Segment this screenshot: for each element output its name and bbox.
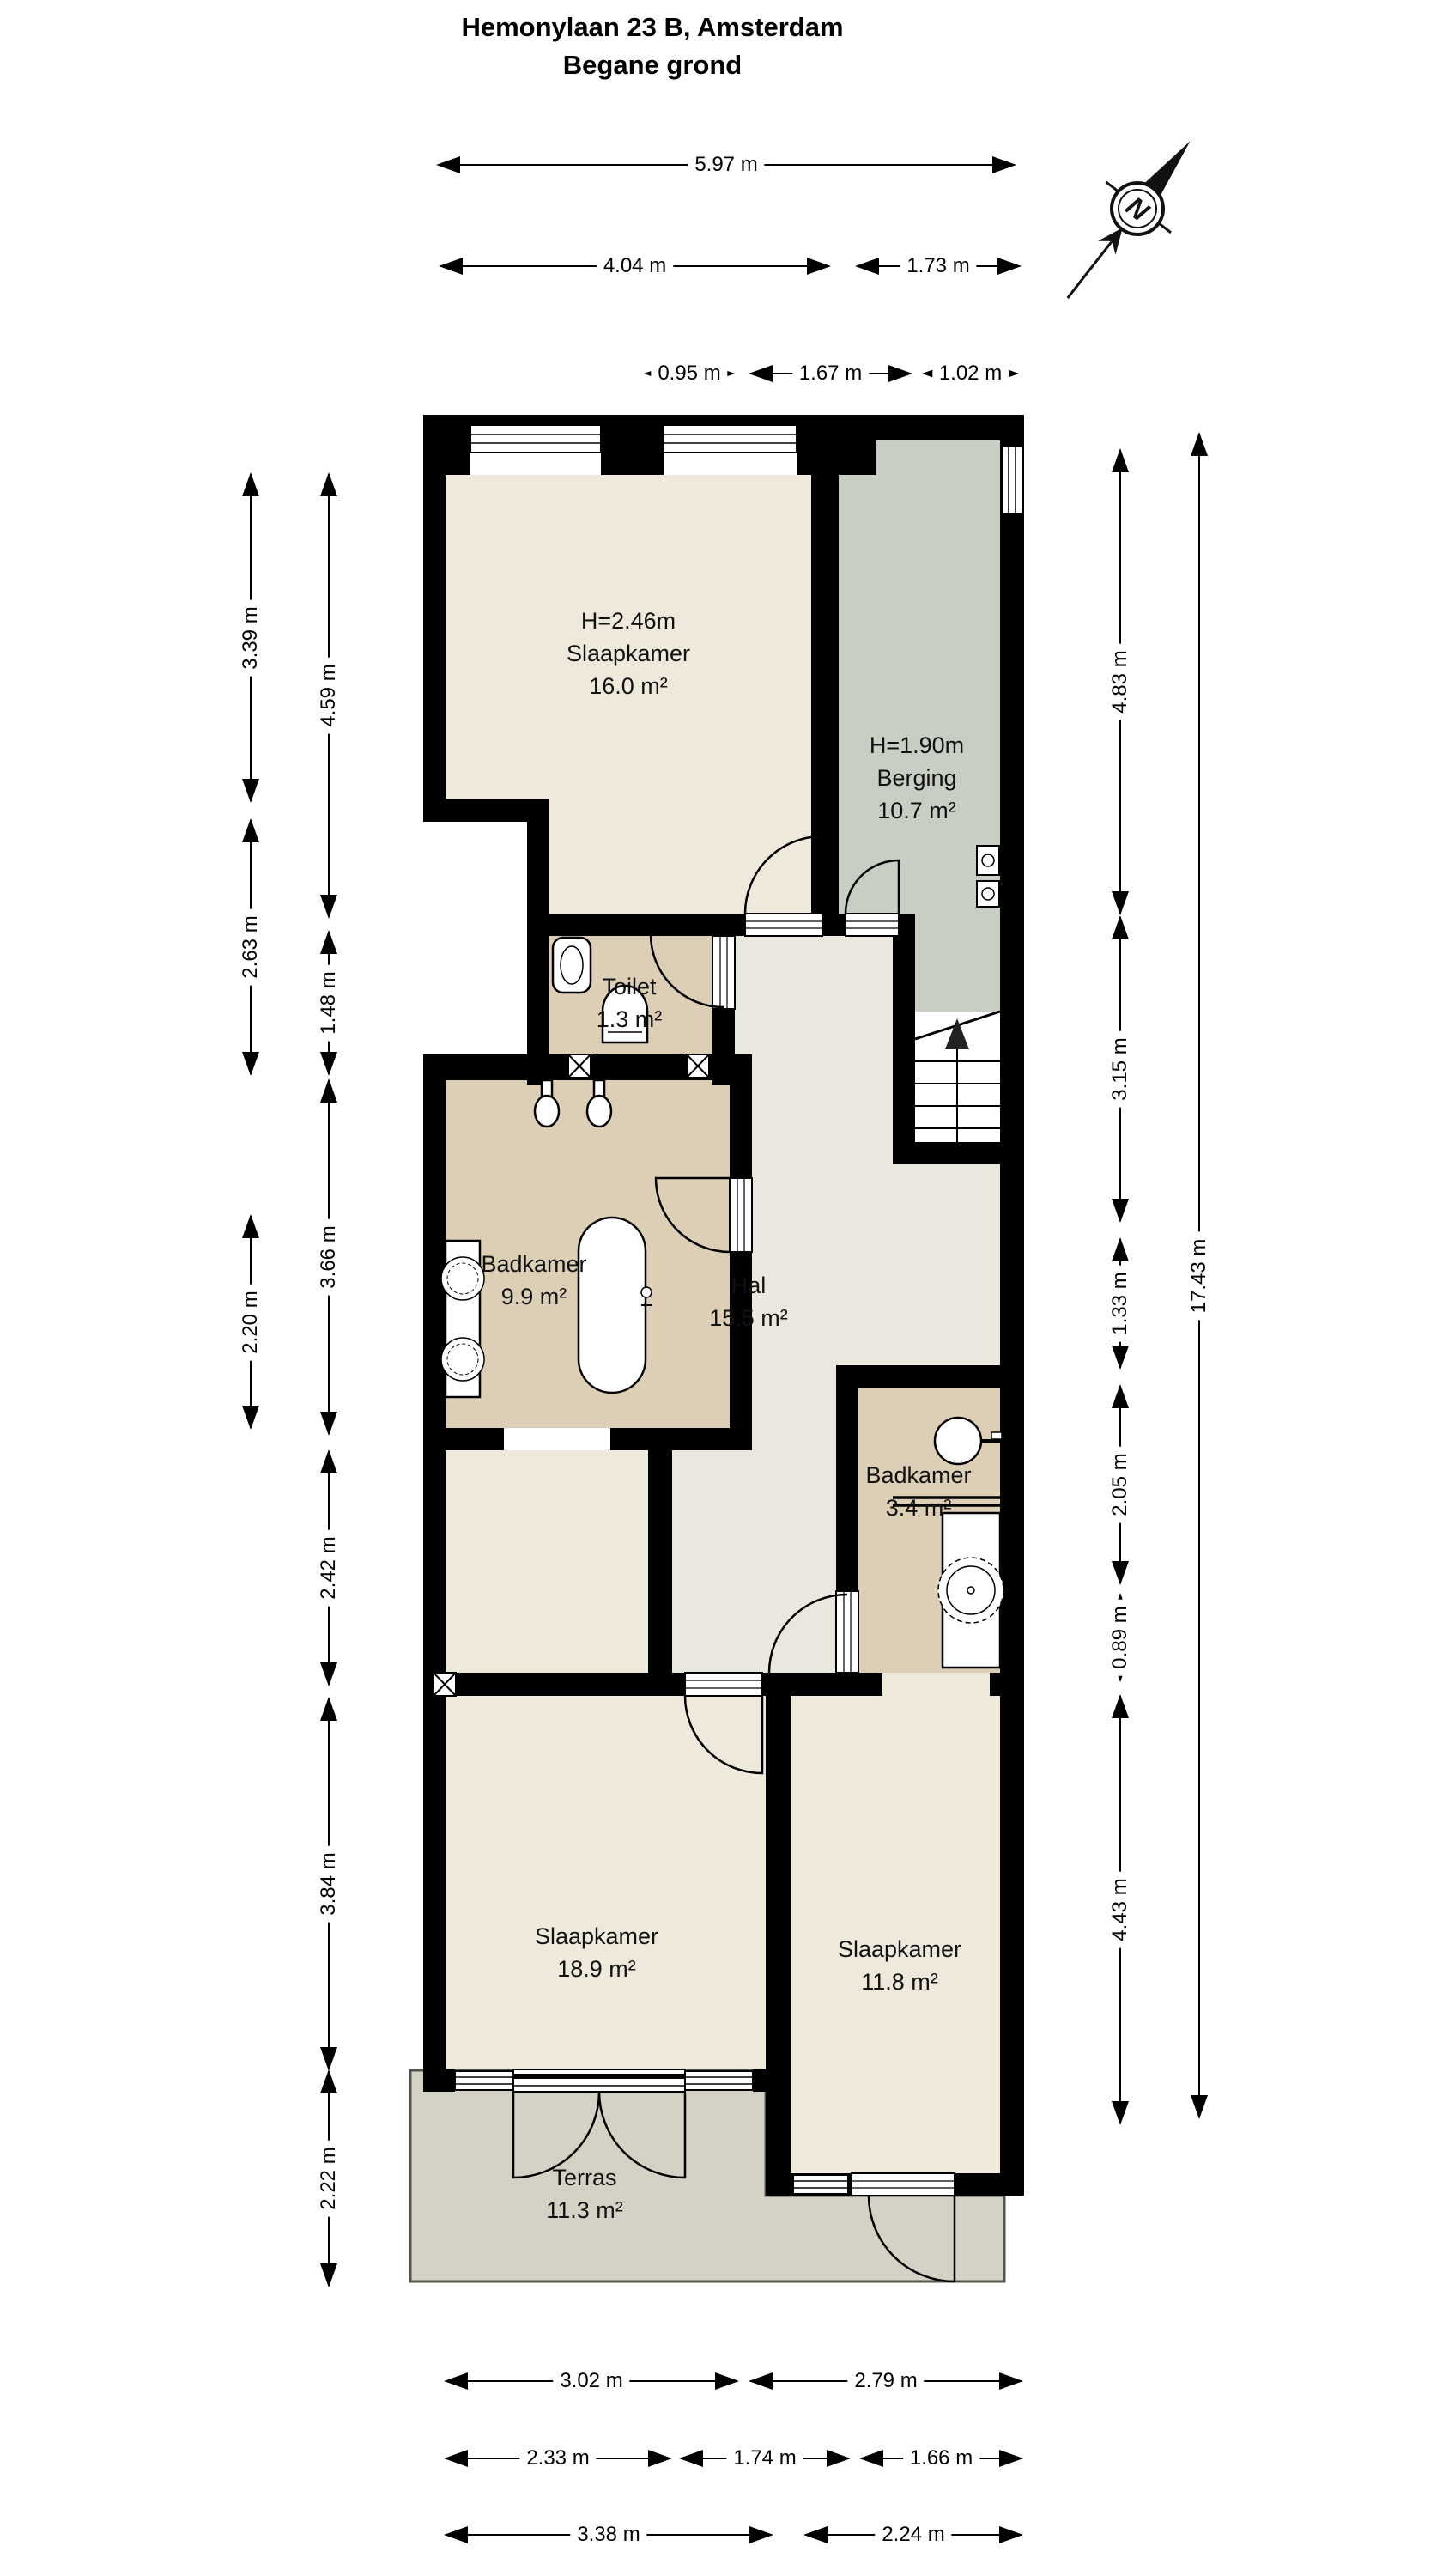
room-label-terras: Terras11.3 m²	[546, 2161, 623, 2227]
room-label-slaapkamer-2: Slaapkamer18.9 m²	[535, 1920, 658, 1985]
bathtub	[579, 1218, 652, 1393]
window-slaapkamer-2-right	[685, 2071, 753, 2090]
dimension-label: 1.73 m	[900, 255, 976, 277]
dimension-label: 3.15 m	[1109, 1030, 1131, 1107]
toilet-sink	[553, 938, 591, 993]
dimension-label: 3.66 m	[318, 1218, 340, 1295]
dimension-label: 4.04 m	[597, 255, 673, 277]
room-label-slaapkamer-3: Slaapkamer11.8 m²	[838, 1933, 961, 1998]
window-top-2	[664, 425, 797, 475]
room-passage-floor	[446, 1450, 648, 1673]
room-label-berging: H=1.90mBerging10.7 m²	[870, 729, 964, 827]
floorplan-page: Hemonylaan 23 B, Amsterdam Begane grond	[0, 0, 1449, 2576]
room-label-badkamer-1: Badkamer9.9 m²	[481, 1248, 586, 1313]
dimension-label: 3.02 m	[553, 2370, 629, 2392]
dimension-label: 2.79 m	[847, 2370, 924, 2392]
dimension-label: 1.33 m	[1109, 1265, 1131, 1341]
washing-machine	[938, 1513, 1003, 1668]
dimension-label: 4.59 m	[318, 657, 340, 733]
room-label-toilet: Toilet1.3 m²	[597, 970, 663, 1036]
dimension-label: 2.63 m	[239, 908, 262, 985]
room-label-badkamer-2: Badkamer3.4 m²	[865, 1459, 971, 1524]
dimension-label: 1.66 m	[903, 2447, 979, 2470]
dimension-label: 2.42 m	[318, 1529, 340, 1606]
window-slaapkamer-2-left	[455, 2071, 513, 2090]
compass-icon: N	[1035, 116, 1222, 324]
room-slaapkamer-2-floor	[446, 1696, 766, 2069]
window-top-1	[470, 425, 601, 475]
dimension-label: 3.84 m	[318, 1845, 340, 1922]
dimension-label: 1.67 m	[792, 362, 869, 385]
dimension-label: 17.43 m	[1188, 1231, 1210, 1320]
room-label-hal: Hal15.5 m²	[709, 1269, 788, 1334]
room-label-slaapkamer-1: H=2.46mSlaapkamer16.0 m²	[567, 605, 690, 702]
dimension-label: 2.24 m	[875, 2524, 951, 2546]
window-slaapkamer-3	[793, 2175, 848, 2194]
dimension-label: 4.83 m	[1109, 643, 1131, 720]
dimension-label: 5.97 m	[688, 154, 764, 176]
room-floors	[410, 440, 1004, 2281]
dimension-label: 0.89 m	[1109, 1599, 1131, 1675]
bathroom-vanity	[441, 1241, 484, 1397]
dimension-label: 1.48 m	[318, 964, 340, 1041]
passage-slaapkamer-3	[882, 1673, 990, 1696]
shaft-slaapkamer-2	[433, 1673, 456, 1696]
dimension-label: 2.22 m	[318, 2140, 340, 2216]
dimension-label: 1.74 m	[726, 2447, 803, 2470]
dimension-label: 0.95 m	[651, 362, 727, 385]
dimension-label: 2.33 m	[519, 2447, 596, 2470]
shaft-toilet-right	[687, 1054, 709, 1078]
compass-axis-line	[1068, 236, 1117, 298]
dimension-label: 2.20 m	[239, 1284, 262, 1360]
window-berging-right	[1002, 447, 1022, 513]
dimension-label: 2.05 m	[1109, 1446, 1131, 1522]
dimension-label: 3.38 m	[570, 2524, 646, 2546]
dimension-label: 4.43 m	[1109, 1871, 1131, 1947]
dimension-label: 1.02 m	[932, 362, 1009, 385]
dimension-label: 3.39 m	[239, 599, 262, 676]
shaft-toilet-left	[568, 1054, 591, 1078]
